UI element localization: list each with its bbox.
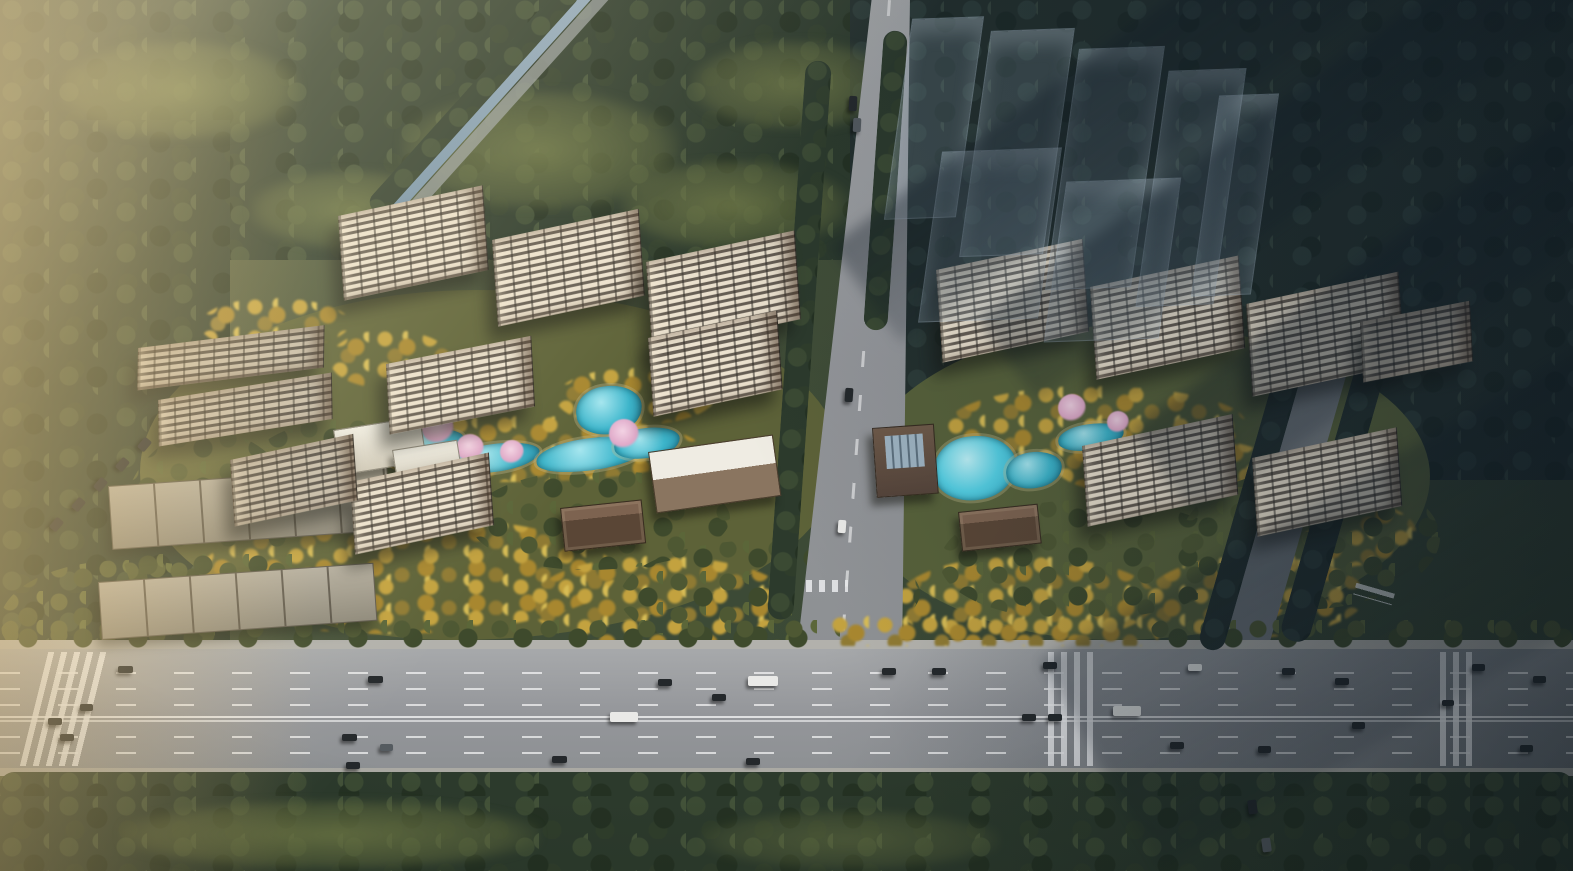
ghost-building-layer: [0, 0, 1573, 871]
ghost-future-building: [918, 147, 1062, 322]
aerial-render-canvas: Aerial masterplan rendering of a residen…: [0, 0, 1573, 871]
ghost-future-building: [1044, 178, 1182, 343]
